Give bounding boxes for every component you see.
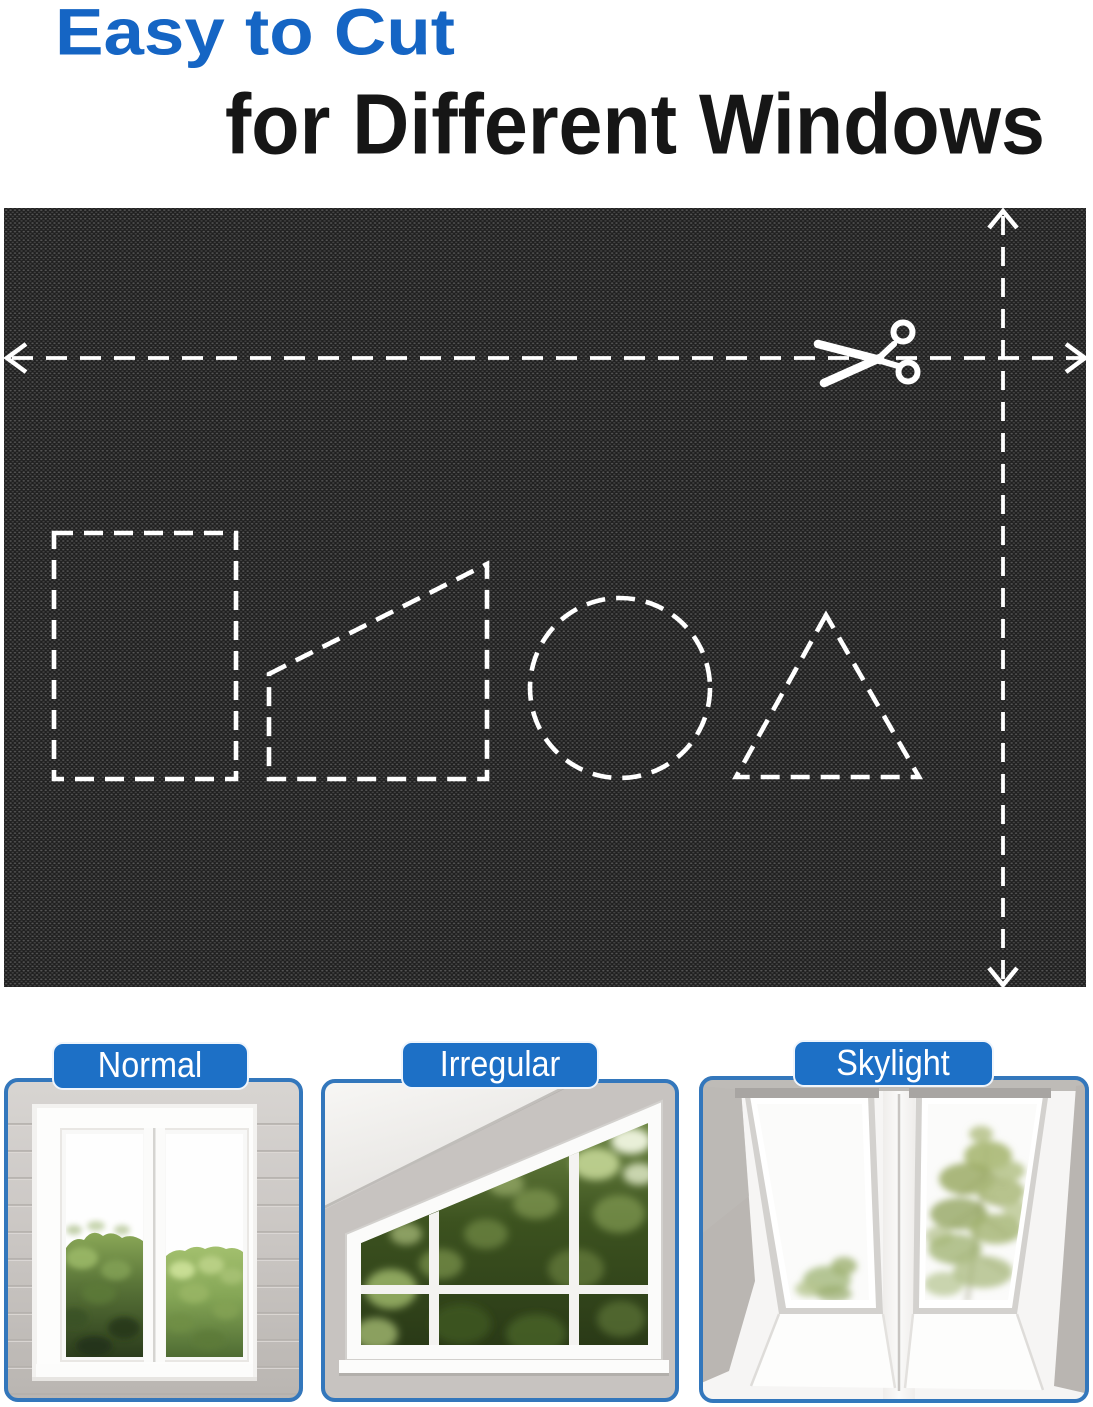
svg-text:for Different Windows: for Different Windows bbox=[225, 78, 1045, 173]
svg-text:Easy to Cut: Easy to Cut bbox=[55, 0, 455, 69]
